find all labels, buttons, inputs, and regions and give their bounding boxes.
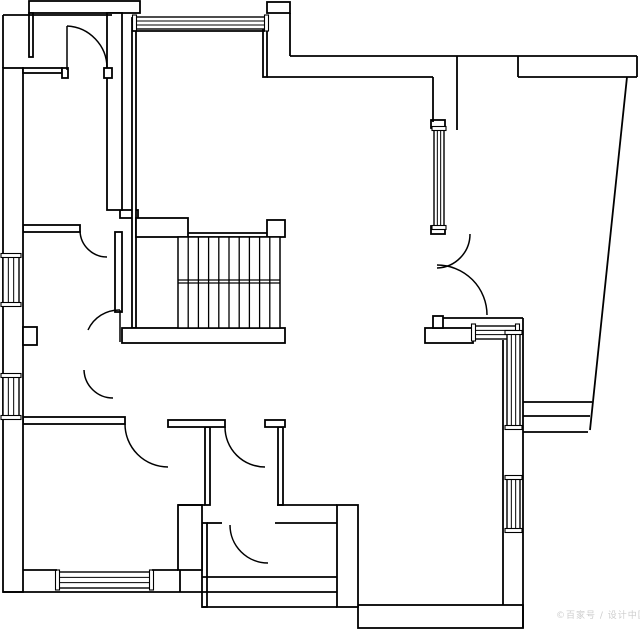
main-double-door-leaf-small xyxy=(437,234,470,268)
bottom-left-room-door xyxy=(125,424,168,467)
bedroom-inner-door xyxy=(80,231,107,257)
bathroom-door xyxy=(225,427,265,467)
floorplan-page: ©百家号 / 设计中国 xyxy=(0,0,640,631)
floorplan-svg xyxy=(0,0,640,631)
main-double-door-leaf-large xyxy=(437,265,487,315)
wc-door-lower xyxy=(84,370,113,398)
entry-door-top-left xyxy=(67,26,107,70)
bottom-middle-room-door xyxy=(230,525,268,563)
wall-lines-layer xyxy=(3,13,637,628)
stairs xyxy=(178,237,280,328)
watermark-text: ©百家号 / 设计中国 xyxy=(556,608,640,621)
wc-door-upper xyxy=(88,310,120,342)
